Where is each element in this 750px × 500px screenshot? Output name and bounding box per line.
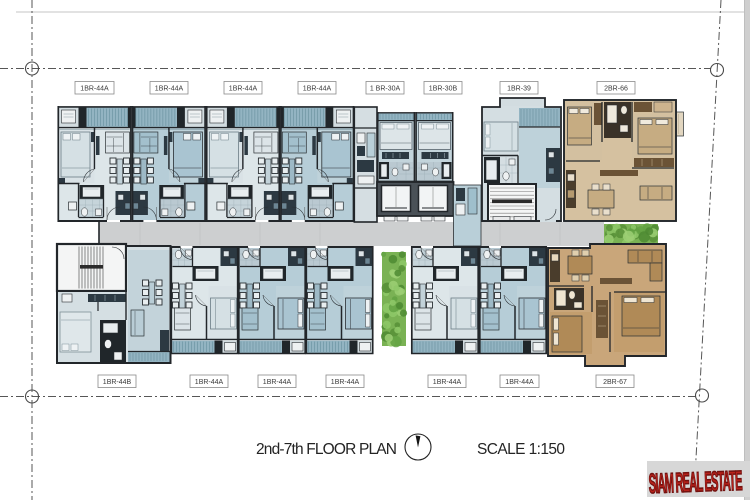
svg-text:1BR-44A: 1BR-44A [80, 86, 109, 93]
svg-text:1BR-44A: 1BR-44A [155, 86, 184, 93]
svg-text:1BR-30B: 1BR-30B [429, 86, 458, 93]
svg-text:SIAM REAL ESTATE: SIAM REAL ESTATE [648, 464, 743, 499]
svg-text:1BR-44A: 1BR-44A [433, 379, 462, 386]
svg-text:1BR-44A: 1BR-44A [303, 86, 332, 93]
svg-text:2nd-7th FLOOR PLAN: 2nd-7th FLOOR PLAN [256, 441, 397, 458]
svg-text:2BR-67: 2BR-67 [603, 379, 627, 386]
svg-text:1BR-39: 1BR-39 [507, 86, 531, 93]
svg-text:1BR-44A: 1BR-44A [229, 86, 258, 93]
svg-text:1 BR-30A: 1 BR-30A [370, 86, 401, 93]
svg-text:1BR-44A: 1BR-44A [331, 379, 360, 386]
svg-text:1BR-44A: 1BR-44A [263, 379, 292, 386]
svg-text:1BR-44B: 1BR-44B [103, 379, 132, 386]
svg-text:1BR-44A: 1BR-44A [505, 379, 534, 386]
svg-text:1BR-44A: 1BR-44A [195, 379, 224, 386]
svg-text:2BR-66: 2BR-66 [604, 86, 628, 93]
svg-text:SCALE 1:150: SCALE 1:150 [477, 441, 565, 458]
